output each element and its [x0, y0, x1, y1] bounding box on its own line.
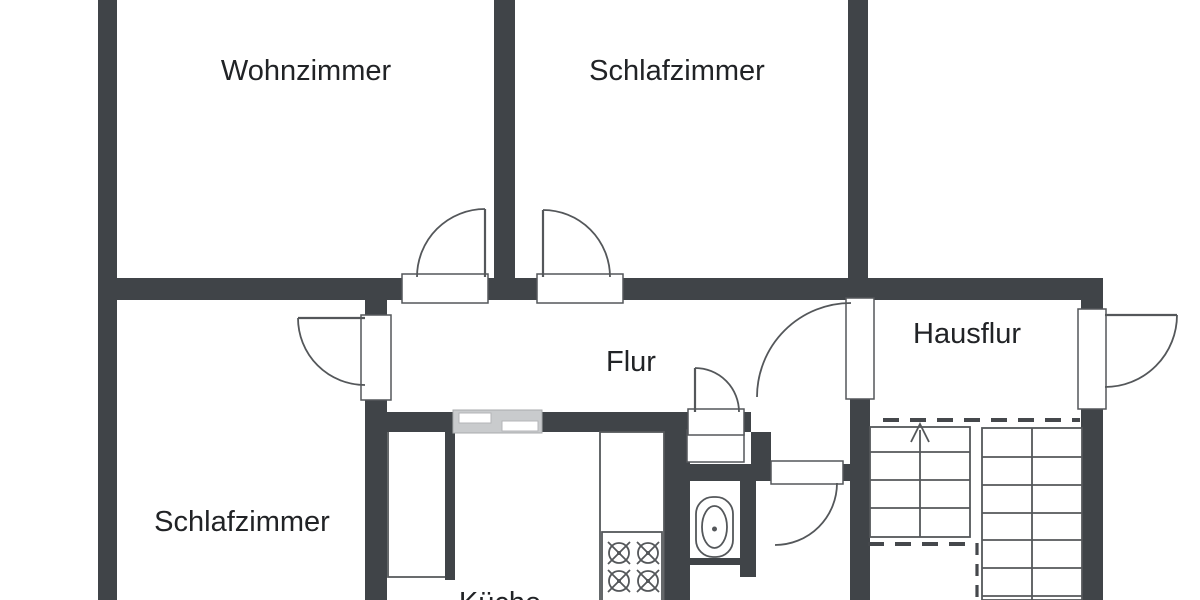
- wall-kueche-partition: [445, 432, 455, 580]
- room-label-hausflur: Hausflur: [913, 318, 1021, 350]
- door-swing-icon: [1105, 315, 1177, 387]
- wall-kueche-wc: [664, 432, 690, 600]
- wall-bath-top: [841, 464, 870, 481]
- wall-wc-top: [686, 464, 773, 481]
- door-swing-icon: [695, 368, 739, 412]
- door-wohnzimmer: [402, 209, 488, 303]
- door-bad: [771, 461, 843, 545]
- door-flur-hausflur: [757, 298, 874, 399]
- door-opening: [361, 315, 391, 400]
- closet-outline: [388, 432, 445, 577]
- wall-horizontal-left: [98, 278, 402, 300]
- floor-plan-drawing: Wohnzimmer Schlafzimmer Flur Hausflur Sc…: [0, 0, 1200, 600]
- door-opening: [1078, 309, 1106, 409]
- door-opening: [688, 409, 744, 435]
- toilet-icon: [696, 497, 733, 557]
- room-label-schlafzimmer-top: Schlafzimmer: [589, 55, 765, 87]
- wall-pier: [751, 432, 771, 464]
- outer-wall-right-lower: [1081, 408, 1103, 600]
- wall-wc-bottom: [690, 558, 756, 565]
- door-swing-icon: [298, 318, 365, 385]
- door-swing-icon: [543, 210, 610, 277]
- room-label-wohnzimmer: Wohnzimmer: [221, 55, 392, 87]
- wall-flur-south-a: [368, 412, 455, 432]
- stove-burners-icon: [602, 532, 662, 600]
- door-opening: [537, 274, 623, 303]
- floor-plan: Wohnzimmer Schlafzimmer Flur Hausflur Sc…: [0, 0, 1200, 600]
- door-opening: [846, 298, 874, 399]
- door-swing-icon: [775, 483, 837, 545]
- door-swing-icon: [757, 303, 851, 397]
- wall-hausflur-left: [850, 397, 870, 600]
- room-label-kueche: Küche: [459, 587, 541, 600]
- door-schlafzimmer-top: [537, 210, 623, 303]
- room-label-schlafzimmer-bottom: Schlafzimmer: [154, 506, 330, 538]
- door-entrance: [1078, 309, 1177, 409]
- room-label-flur: Flur: [606, 346, 656, 378]
- door-swing-icon: [417, 209, 485, 277]
- door-opening: [771, 461, 843, 484]
- wall-horizontal-right: [623, 278, 1103, 300]
- pass-through-window-icon: [453, 410, 542, 433]
- wall-schlafzimmer2-right-upper: [365, 295, 387, 315]
- door-schlafzimmer-bottom: [298, 315, 391, 400]
- wall-wohnzimmer-schlafzimmer: [494, 0, 515, 300]
- door-wc: [688, 368, 744, 435]
- wall-horizontal-center: [488, 278, 537, 300]
- door-opening: [402, 274, 488, 303]
- staircase-up-icon: [868, 420, 1082, 600]
- wall-schlafzimmer-right: [848, 0, 868, 300]
- wall-flur-south-b: [540, 412, 690, 432]
